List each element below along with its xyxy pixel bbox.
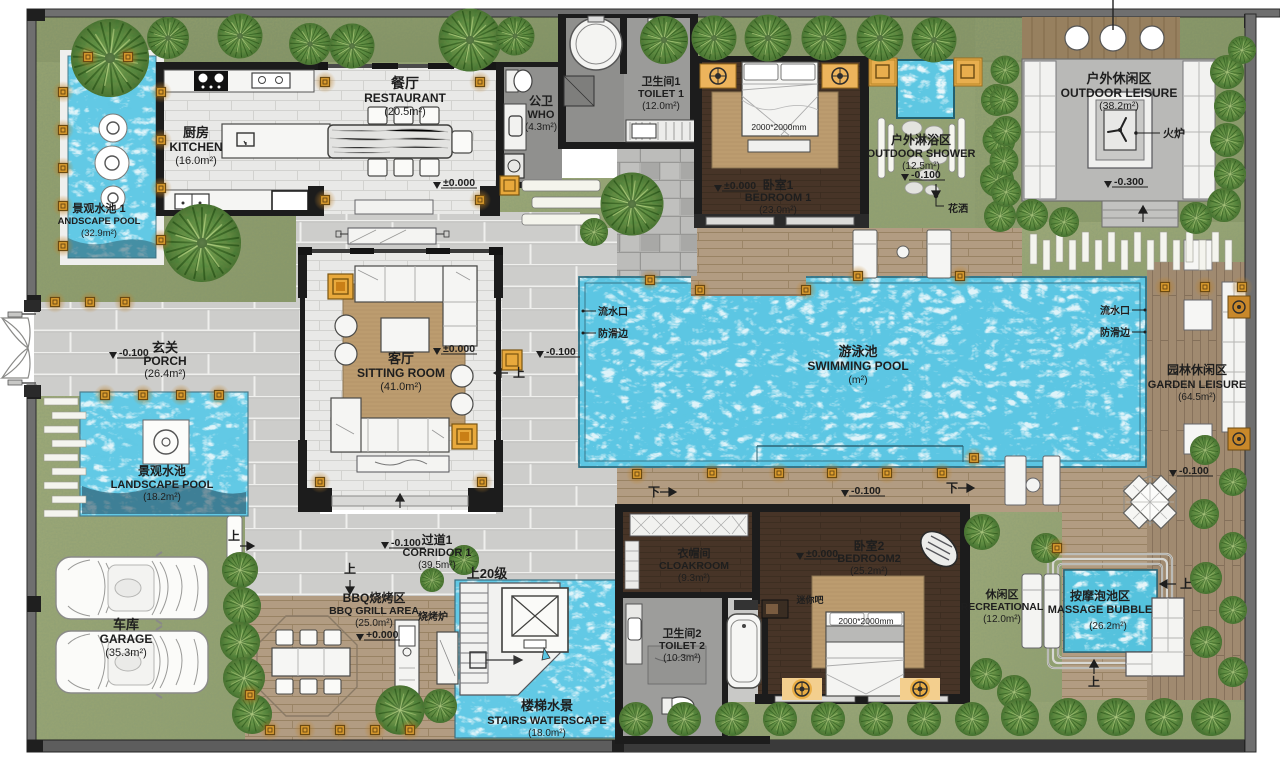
svg-text:公卫: 公卫 [529,94,553,108]
svg-text:-0.100: -0.100 [911,169,941,181]
svg-text:(16.0m²): (16.0m²) [175,155,217,167]
svg-text:上: 上 [344,561,356,576]
svg-text:-0.300: -0.300 [1114,176,1144,188]
svg-text:上: 上 [1088,674,1100,689]
svg-text:(41.0m²): (41.0m²) [380,381,422,393]
svg-text:花洒: 花洒 [948,202,968,215]
svg-text:火炉: 火炉 [1163,126,1185,140]
svg-text:迷你吧: 迷你吧 [795,594,823,605]
svg-text:(25.2m²): (25.2m²) [850,566,888,577]
svg-text:烧烤炉: 烧烤炉 [418,610,448,623]
svg-text:RECREATIONAL: RECREATIONAL [961,601,1044,613]
svg-text:MASSAGE BUBBLE: MASSAGE BUBBLE [1048,604,1153,616]
svg-text:上: 上 [228,528,240,543]
svg-text:卧室1: 卧室1 [763,177,794,192]
svg-text:流水口: 流水口 [598,305,628,318]
svg-text:-0.100: -0.100 [119,347,149,359]
svg-text:-0.100: -0.100 [851,485,881,497]
svg-text:KITCHEN: KITCHEN [169,140,222,154]
svg-text:车库: 车库 [113,617,139,632]
svg-text:(12.0m²): (12.0m²) [983,614,1021,625]
svg-text:景观水池: 景观水池 [138,463,186,478]
svg-text:厨房: 厨房 [183,125,209,140]
svg-text:±0.000: ±0.000 [806,548,838,560]
svg-text:游泳池: 游泳池 [838,344,877,359]
svg-text:(38.2m²): (38.2m²) [1099,100,1139,112]
svg-text:(64.5m²): (64.5m²) [1178,392,1216,403]
svg-text:按摩泡池区: 按摩泡池区 [1070,588,1130,603]
svg-text:±0.000: ±0.000 [724,180,756,192]
svg-text:户外淋浴区: 户外淋浴区 [891,132,951,147]
svg-text:(32.9m²): (32.9m²) [81,228,117,239]
svg-text:±0.000: ±0.000 [443,177,475,189]
svg-text:(39.5m²): (39.5m²) [418,560,456,571]
svg-text:下: 下 [946,481,958,495]
svg-text:户外休闲区: 户外休闲区 [1086,71,1151,86]
svg-text:防滑边: 防滑边 [598,327,629,340]
svg-text:餐厅: 餐厅 [390,75,419,91]
svg-text:(4.3m²): (4.3m²) [525,122,557,133]
svg-text:(20.5m²): (20.5m²) [384,106,426,118]
svg-text:LANDSCAPE POOL: LANDSCAPE POOL [111,479,214,491]
svg-text:±0.000: ±0.000 [443,343,475,355]
svg-text:TOILET 1: TOILET 1 [638,88,684,100]
svg-text:楼梯水景: 楼梯水景 [521,698,573,713]
svg-text:(26.2m²): (26.2m²) [1089,621,1127,632]
svg-text:上: 上 [513,365,525,380]
svg-text:(26.4m²): (26.4m²) [144,368,186,380]
svg-text:OUTDOOR SHOWER: OUTDOOR SHOWER [867,148,976,160]
svg-text:ANDSCAPE POOL: ANDSCAPE POOL [58,216,141,227]
svg-text:BEDROOM2: BEDROOM2 [837,553,901,565]
svg-text:-0.100: -0.100 [1179,465,1209,477]
svg-text:SWIMMING POOL: SWIMMING POOL [807,359,908,373]
svg-text:景观水池 1: 景观水池 1 [71,201,125,215]
svg-text:+0.000: +0.000 [366,629,399,641]
svg-text:2000*2000mm: 2000*2000mm [838,616,893,626]
svg-text:卧室2: 卧室2 [854,538,885,553]
svg-text:休闲区: 休闲区 [985,587,1019,601]
svg-text:WHO: WHO [528,109,555,121]
svg-text:CLOAKROOM: CLOAKROOM [659,560,729,572]
svg-text:防滑边: 防滑边 [1100,326,1131,339]
svg-text:衣帽间: 衣帽间 [678,546,711,560]
svg-text:(m²): (m²) [848,374,867,386]
svg-text:卫生间1: 卫生间1 [641,74,680,88]
svg-text:BBQ烧烤区: BBQ烧烤区 [343,590,406,605]
svg-text:卫生间2: 卫生间2 [662,626,701,640]
svg-text:2000*2000mm: 2000*2000mm [751,122,806,132]
svg-text:下: 下 [648,485,660,499]
svg-text:OUTDOOR LEISURE: OUTDOOR LEISURE [1061,86,1178,100]
svg-text:(18.0m²): (18.0m²) [528,728,566,739]
svg-text:PORCH: PORCH [143,354,186,368]
svg-text:BEDROOM 1: BEDROOM 1 [745,192,812,204]
svg-text:SITTING ROOM: SITTING ROOM [357,366,445,380]
svg-text:(23.0m²): (23.0m²) [759,205,797,216]
svg-text:-0.100: -0.100 [391,537,421,549]
svg-text:上: 上 [1180,576,1192,591]
svg-text:上20级: 上20级 [467,566,508,581]
svg-text:GARAGE: GARAGE [100,632,153,646]
svg-text:-0.100: -0.100 [546,346,576,358]
svg-text:客厅: 客厅 [388,351,414,366]
svg-text:(35.3m²): (35.3m²) [105,647,147,659]
svg-text:(25.0m²): (25.0m²) [355,618,393,629]
svg-text:过道1: 过道1 [422,532,453,547]
svg-text:流水口: 流水口 [1100,304,1130,317]
svg-text:(10.3m²): (10.3m²) [663,653,701,664]
svg-text:玄关: 玄关 [152,340,178,355]
svg-text:园林休闲区: 园林休闲区 [1167,362,1227,377]
svg-text:(12.0m²): (12.0m²) [642,101,680,112]
svg-text:RESTAURANT: RESTAURANT [364,91,446,105]
svg-text:TOILET 2: TOILET 2 [659,640,705,652]
svg-text:GARDEN LEISURE: GARDEN LEISURE [1148,379,1246,391]
svg-text:(9.3m²): (9.3m²) [678,573,710,584]
svg-text:BBQ GRILL AREA: BBQ GRILL AREA [329,605,419,617]
svg-text:STAIRS WATERSCAPE: STAIRS WATERSCAPE [487,715,606,727]
svg-text:(18.2m²): (18.2m²) [143,492,181,503]
